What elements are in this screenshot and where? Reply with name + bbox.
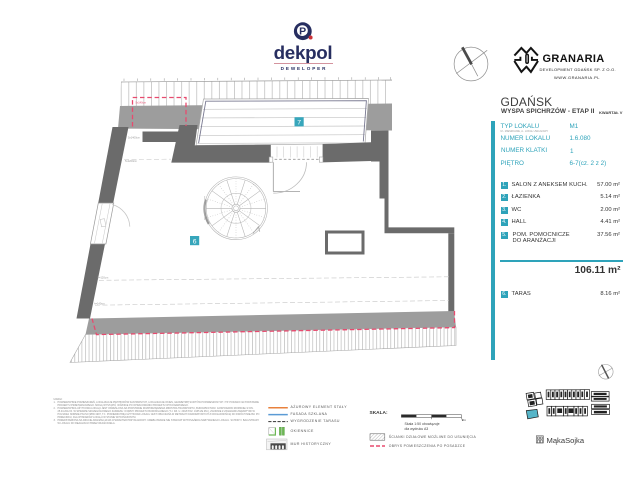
svg-text:5x140cm: 5x140cm: [136, 101, 147, 105]
svg-text:6: 6: [193, 238, 197, 245]
svg-text:7: 7: [297, 120, 301, 127]
svg-text:h=140cm: h=140cm: [94, 302, 105, 306]
svg-text:5x1200cm: 5x1200cm: [125, 159, 137, 163]
svg-text:5x1400cm: 5x1400cm: [128, 136, 140, 140]
svg-text:h=120cm: h=120cm: [98, 276, 109, 280]
